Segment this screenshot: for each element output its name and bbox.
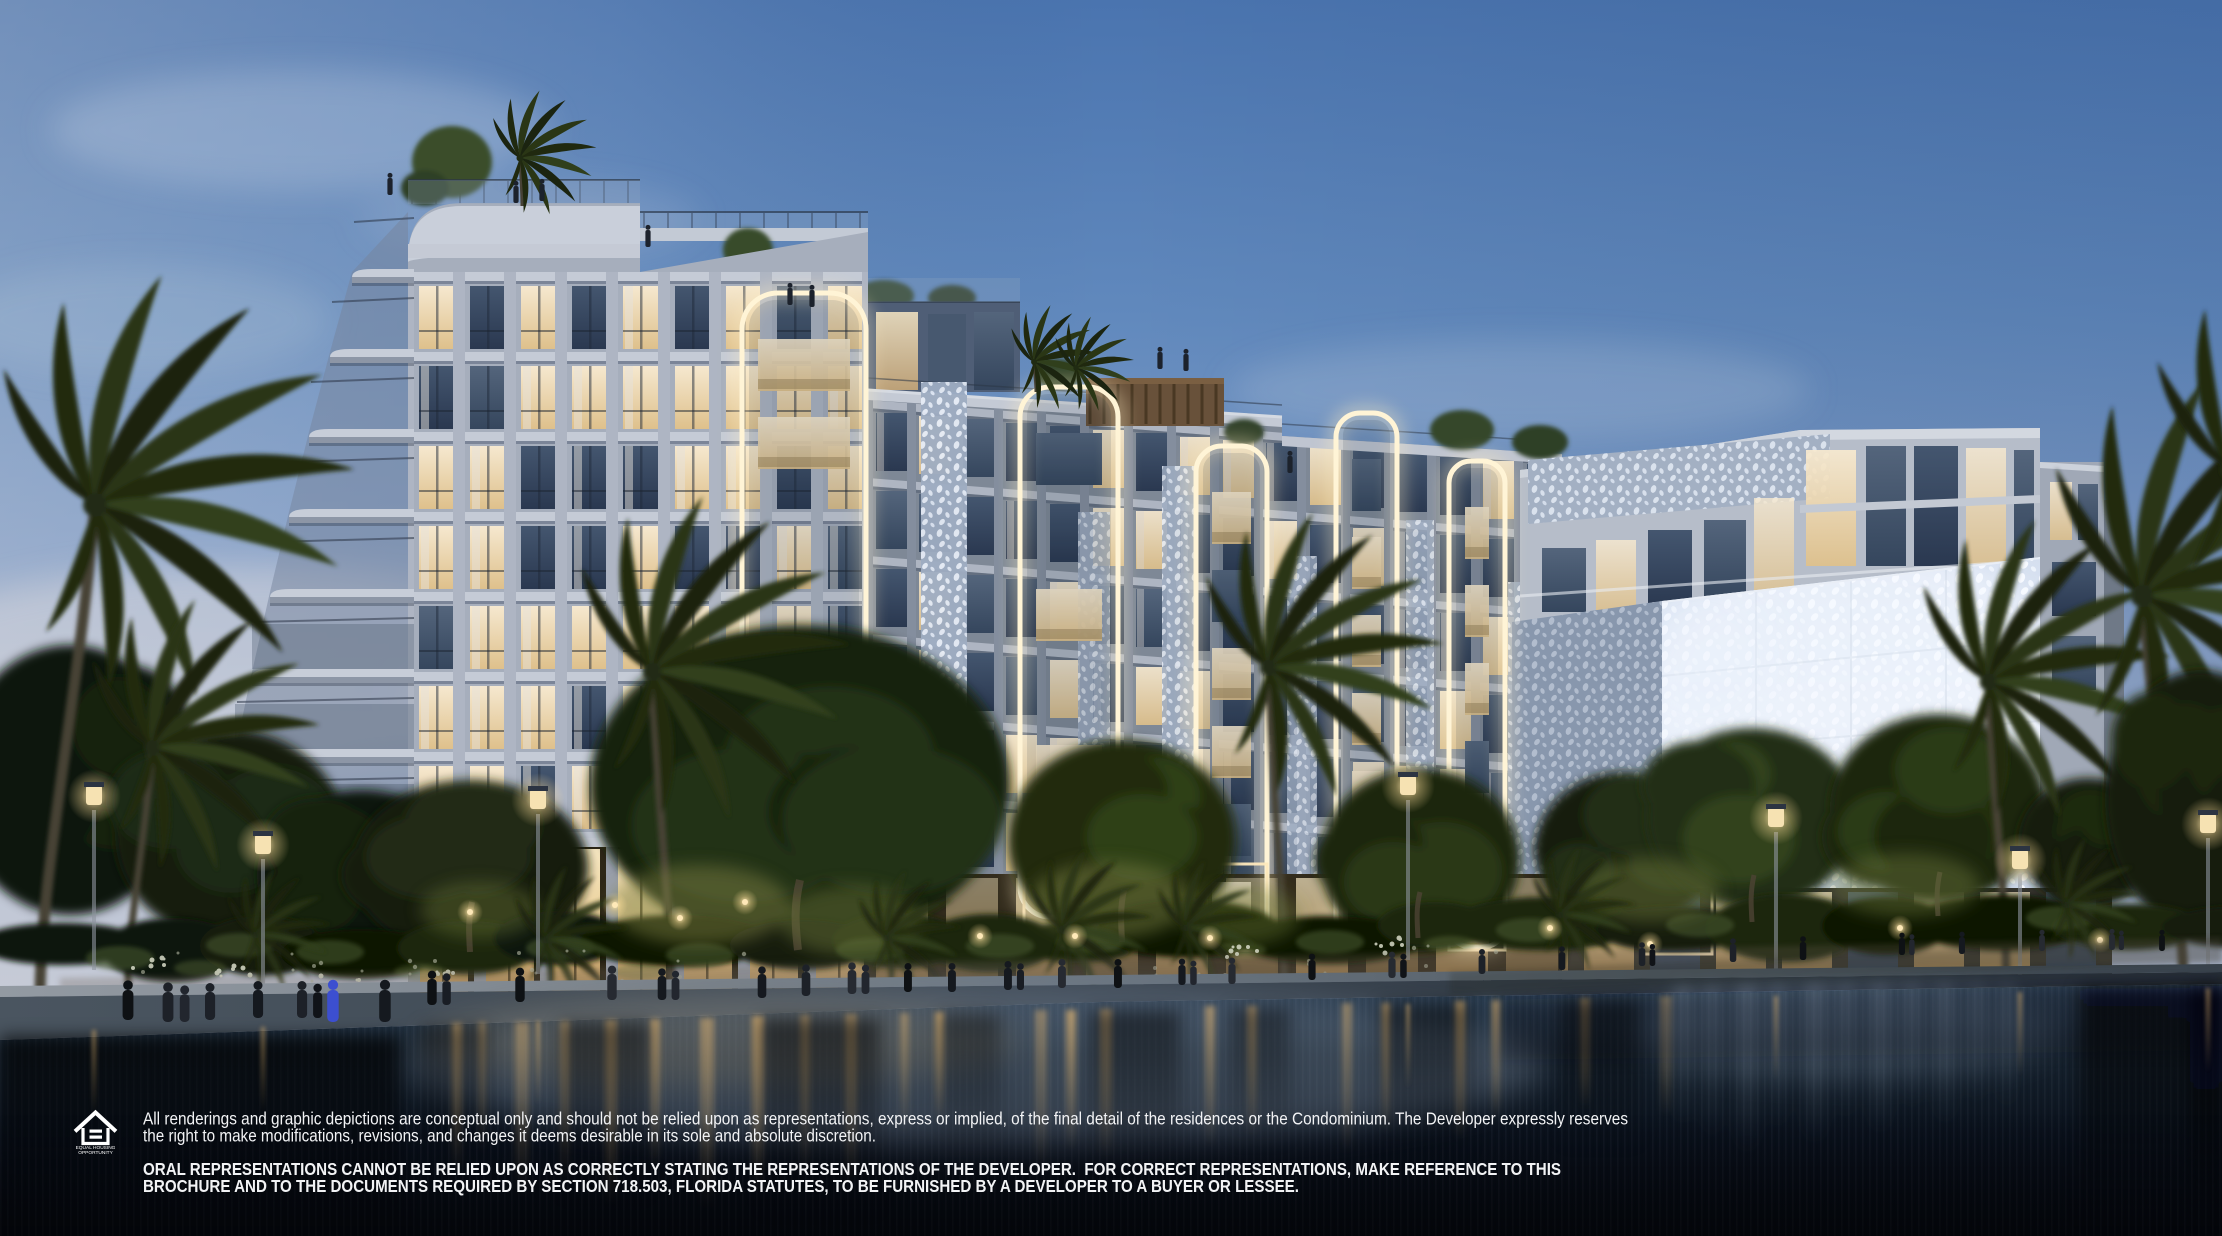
svg-text:BROCHURE AND TO THE DOCUMENTS: BROCHURE AND TO THE DOCUMENTS REQUIRED B…: [143, 1176, 1299, 1196]
svg-text:OPPORTUNITY: OPPORTUNITY: [78, 1150, 113, 1156]
svg-text:the right to make modification: the right to make modifications, revisio…: [143, 1126, 876, 1146]
